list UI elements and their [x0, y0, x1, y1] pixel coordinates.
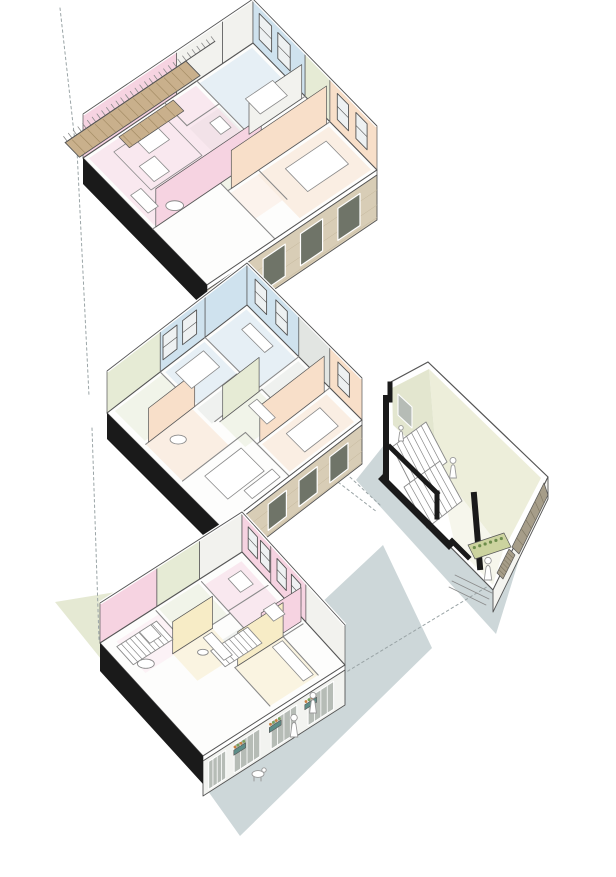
flower [234, 746, 237, 749]
planting [500, 537, 503, 540]
round-furniture [166, 201, 184, 211]
dog-head [262, 768, 266, 772]
round-furniture [198, 649, 209, 655]
round-furniture [170, 435, 186, 444]
exploded-axonometric-svg [0, 0, 616, 877]
flower [272, 721, 275, 724]
planting [489, 541, 492, 544]
pedestrian-figure [310, 692, 317, 713]
figure-body [398, 431, 403, 441]
flower [242, 740, 245, 743]
railing-baluster [64, 136, 68, 141]
entrance-figure [484, 557, 491, 580]
figure-head [399, 426, 404, 431]
planting [494, 539, 497, 542]
figure-head [310, 692, 316, 698]
flower [239, 742, 242, 745]
figure-head [450, 457, 456, 463]
figure-head [485, 557, 492, 564]
flower [308, 698, 311, 701]
planting [478, 544, 481, 547]
flower [237, 744, 240, 747]
railing-baluster [68, 133, 72, 138]
stair-figure [398, 426, 403, 441]
planting [473, 546, 476, 549]
projection-line-top [60, 8, 75, 142]
pedestrian-figure [290, 714, 297, 737]
flower [305, 700, 308, 703]
planting [484, 542, 487, 545]
architectural-axonometric-diagram [0, 0, 616, 877]
figure-head [291, 714, 298, 721]
flower [275, 719, 278, 722]
flower [278, 717, 281, 720]
flower [269, 723, 272, 726]
stair-figure [450, 457, 457, 478]
round-furniture [137, 659, 154, 668]
railing-baluster [78, 127, 82, 132]
